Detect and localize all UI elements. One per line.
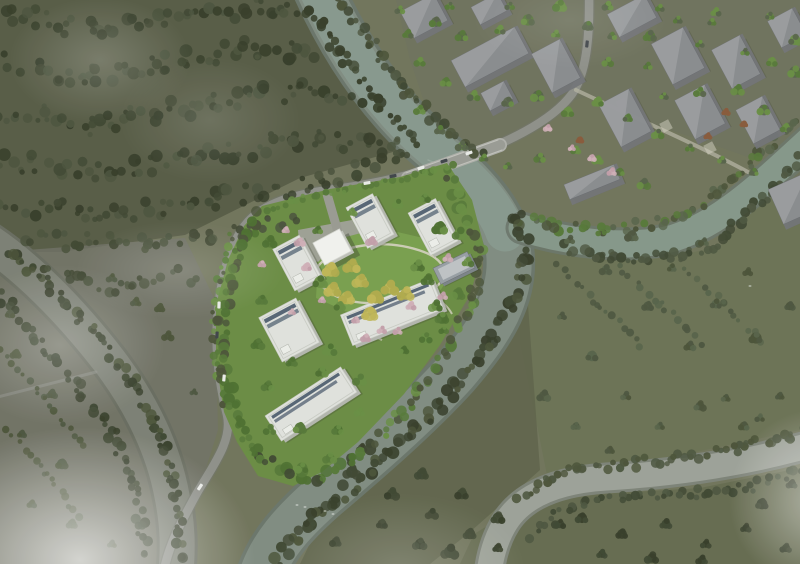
car-9: [222, 374, 226, 381]
aerial-site-plan-rendering: [0, 0, 800, 564]
rendering-canvas: [0, 0, 800, 564]
water-speck-5: [749, 286, 752, 287]
water-speck-1: [324, 511, 327, 512]
water-speck-3: [304, 507, 307, 508]
water-speck-2: [332, 514, 335, 515]
car-8: [215, 331, 219, 338]
water-speck-4: [296, 505, 299, 506]
car-7: [217, 301, 220, 308]
